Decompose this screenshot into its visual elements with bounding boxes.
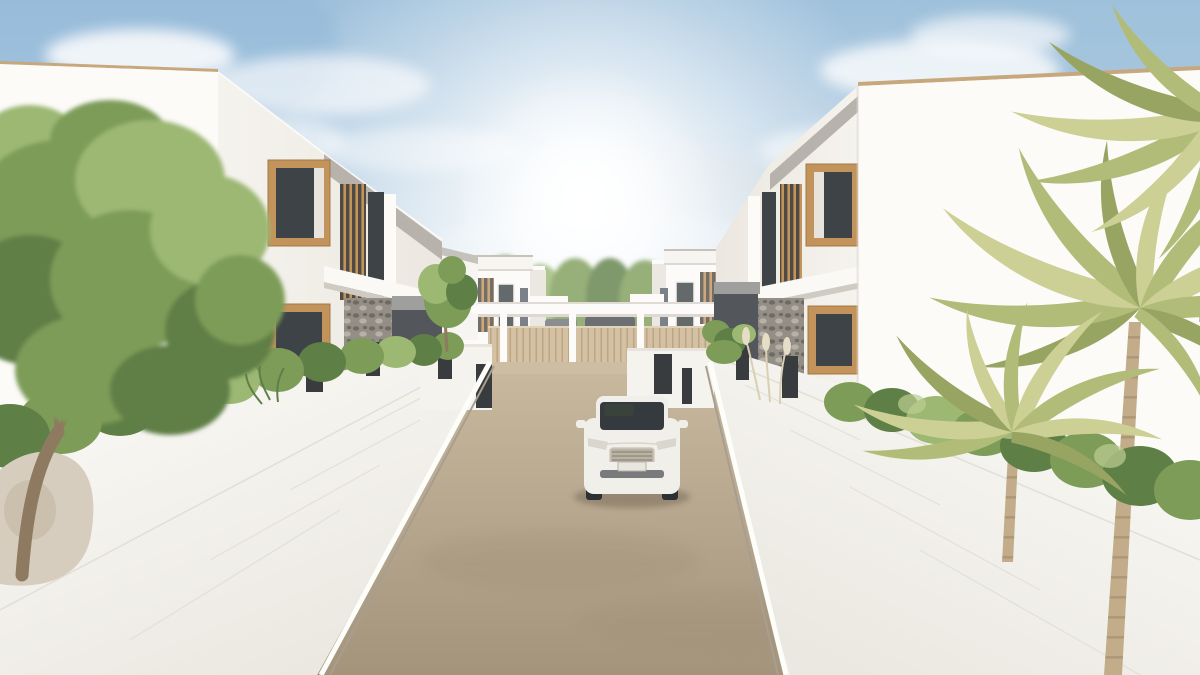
render-canvas xyxy=(0,0,1200,675)
window-upper-left xyxy=(268,160,330,246)
car-mirror xyxy=(678,420,688,428)
car-license-plate xyxy=(618,462,646,471)
window-upper-right xyxy=(806,164,860,246)
architectural-render xyxy=(0,0,1200,675)
wall-pier xyxy=(782,356,798,398)
wall-pier xyxy=(654,354,672,394)
window-lower-right xyxy=(808,306,860,374)
car-mirror xyxy=(576,420,586,428)
slat-screen xyxy=(780,184,802,286)
window-tall xyxy=(762,192,776,292)
wall-pier xyxy=(682,368,692,404)
